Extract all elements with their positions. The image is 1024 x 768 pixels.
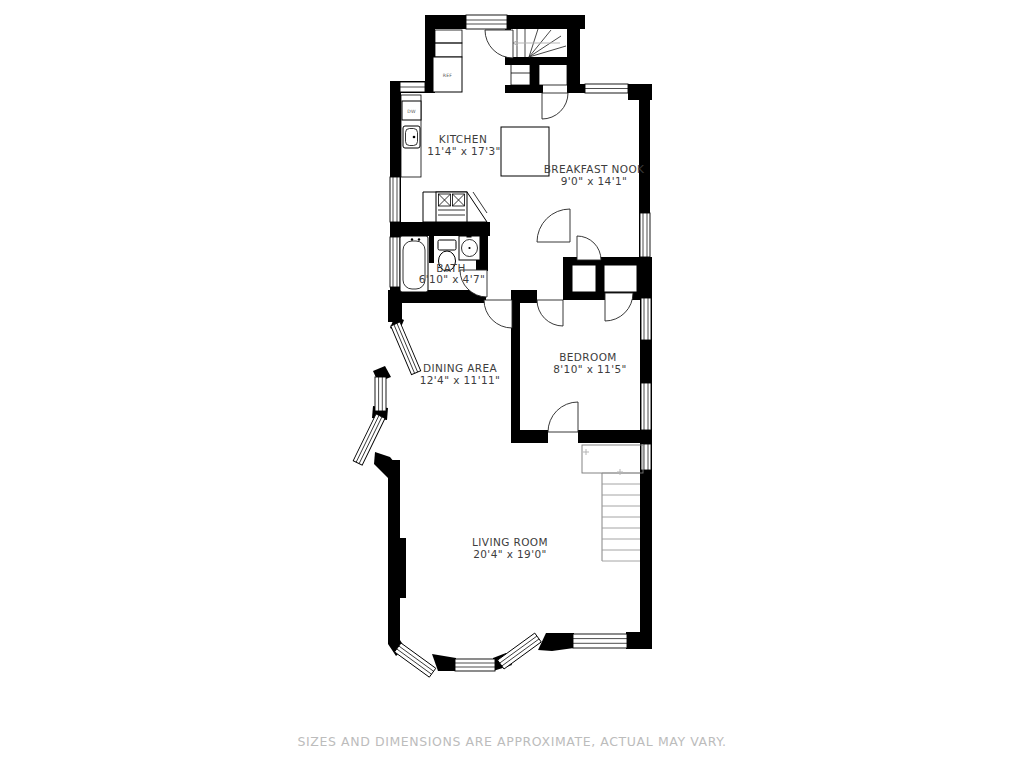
room-label-living-room: LIVING ROOM [472,536,548,548]
door-arc-nook-hall [537,209,570,242]
room-label-breakfast-nook: BREAKFAST NOOK [544,163,645,175]
window-bay-upper [391,322,421,375]
window-stair-right [641,444,651,470]
room-dims-kitchen: 11'4" x 17'3" [427,145,501,157]
cabinet [435,43,462,57]
survey-mark [583,449,623,475]
hall-closets [572,265,637,292]
room-label-dining-area: DINING AREA [423,362,498,374]
room-dims-bedroom: 8'10" x 11'5" [553,363,627,375]
window-nook-top [585,84,628,93]
door-arc-bedroom-living [548,402,578,432]
stove [436,192,467,222]
breakfast-table [501,127,549,176]
window-bay-middle [375,377,386,411]
door-arc-dining [484,300,512,328]
room-label-kitchen: KITCHEN [439,133,487,145]
floor-plan: KITCHEN 11'4" x 17'3" BREAKFAST NOOK 9'0… [0,0,1024,768]
window-living-bay-right [498,633,542,669]
window-living-bottom-right [573,634,627,648]
disclaimer-text: SIZES AND DIMENSIONS ARE APPROXIMATE, AC… [297,734,726,749]
stairs-upper [513,29,566,57]
room-label-bedroom: BEDROOM [559,351,617,363]
window-nook-right [640,213,650,257]
door-arc-closet-right [605,293,633,321]
door-arc-stairs [485,30,513,58]
door-arc-under-stair-closet [542,93,568,119]
window-bedroom-right-1 [641,298,651,340]
room-dims-dining-area: 12'4" x 11'11" [420,374,501,386]
window-bath-left [390,237,400,287]
cabinet [435,30,462,43]
refrigerator-label: REF [443,73,452,78]
door-arc-closet-left [577,236,601,260]
window-bedroom-right-2 [641,383,651,430]
room-dims-breakfast-nook: 9'0" x 14'1" [561,175,628,187]
stairs-lower [582,445,643,561]
window-living-bay-left [395,643,436,677]
bath-partition [429,236,434,263]
room-dims-bath: 6'10" x 4'7" [419,273,486,285]
floor-plan-page: KITCHEN 11'4" x 17'3" BREAKFAST NOOK 9'0… [0,0,1024,768]
under-stair-closets [511,62,567,85]
window-kitchen-top [466,15,507,29]
window-kitchen-left [390,177,400,222]
bath-sink [459,234,480,260]
door-arc-bedroom [537,300,563,326]
dishwasher-label: DW [407,109,416,114]
window-living-bay-center [455,659,495,671]
kitchen-sink [403,126,420,148]
room-dims-living-room: 20'4" x 19'0" [473,548,547,560]
window-left-jut [400,82,425,92]
